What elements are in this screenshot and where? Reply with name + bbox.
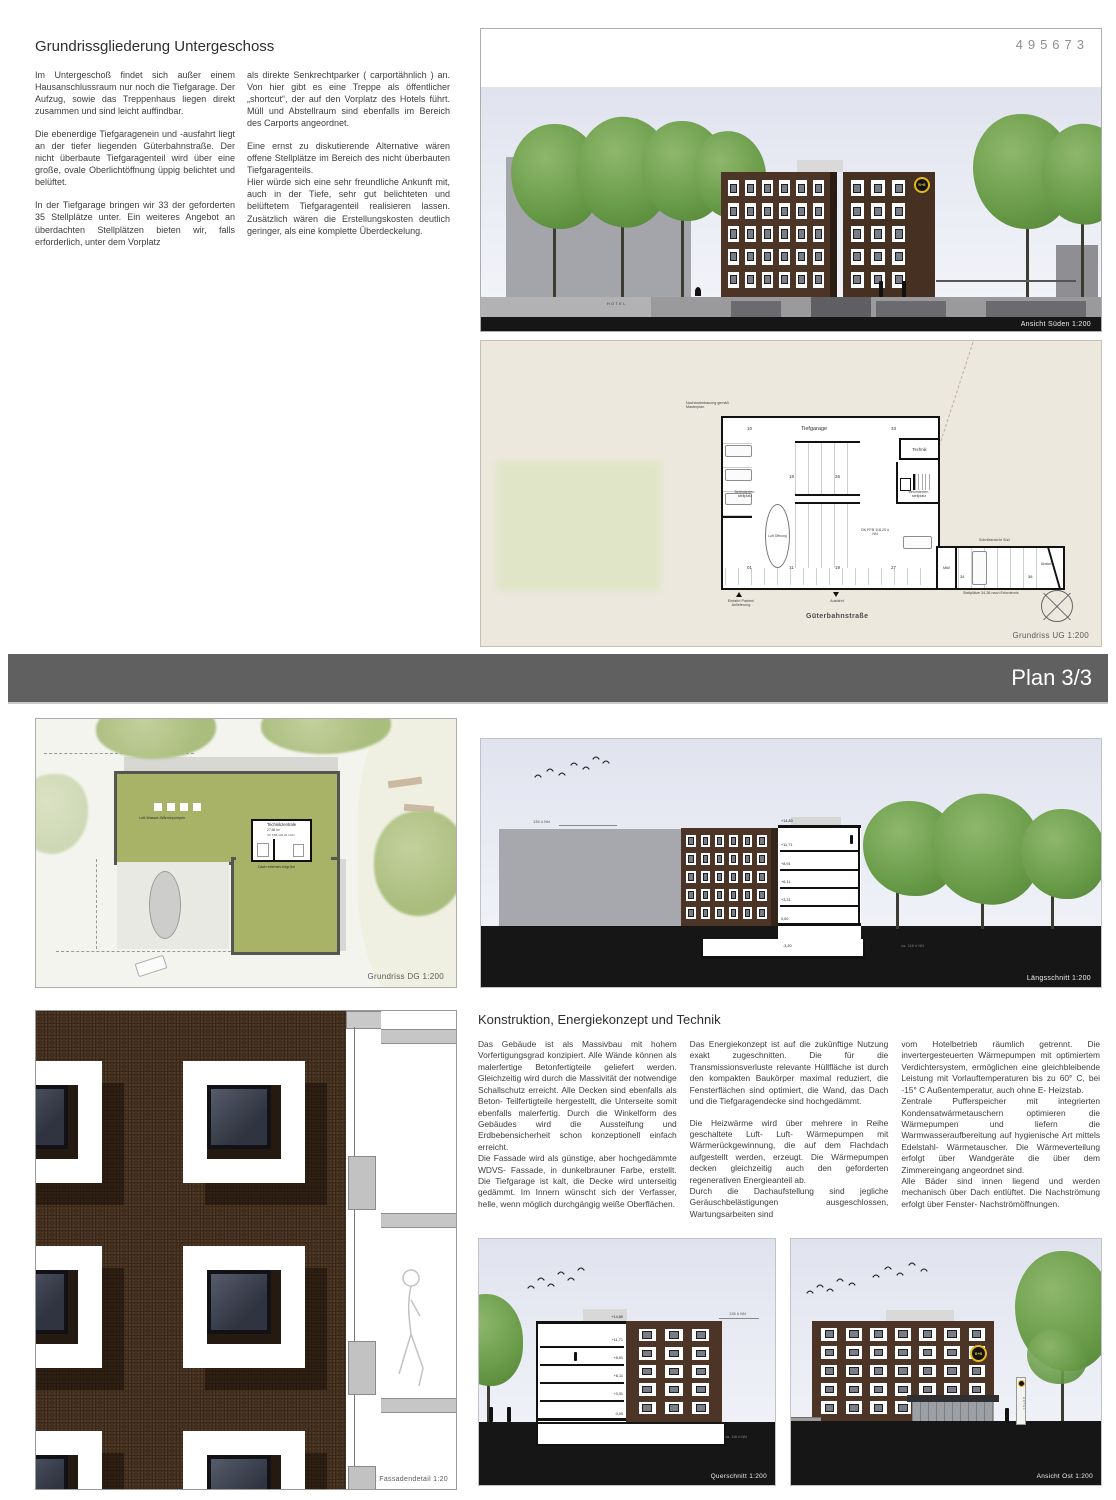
window (870, 1346, 886, 1359)
intro-column-1: Im Untergeschoß findet sich außer einem … (35, 69, 235, 248)
window (821, 1365, 837, 1378)
green-roof-lower (231, 857, 340, 955)
window-cell (940, 1362, 965, 1380)
neighbor-note: Nachbarbebauung gemäß Masterplan (686, 401, 738, 410)
drawing-label: Querschnitt 1:200 (711, 1473, 767, 1480)
window-cell (755, 886, 769, 904)
window (743, 889, 752, 902)
window-cell (866, 1362, 891, 1380)
anchor-bracket (348, 1466, 376, 1490)
technik-room: Technik (899, 438, 940, 460)
plinth-wall: HOTEL (481, 297, 1101, 317)
window (871, 203, 885, 219)
window-cell (634, 1381, 661, 1399)
window-cell (755, 850, 769, 868)
window (745, 249, 756, 265)
window-cell (842, 1343, 867, 1361)
window (870, 1365, 886, 1378)
nn-level-line (719, 1318, 759, 1319)
window-cell (759, 177, 776, 200)
exit-marker (833, 592, 839, 597)
window-cell (915, 1325, 940, 1343)
window (892, 249, 906, 265)
plan-banner: Plan 3/3 (8, 654, 1108, 704)
tree-canopy (35, 774, 88, 854)
wall (896, 462, 898, 502)
intro-text-block: Grundrissgliederung Untergeschoss Im Unt… (35, 38, 450, 248)
level-annotation: +8,91 (781, 862, 791, 866)
wall (896, 502, 938, 504)
note: Stellplätze 34-38 nach Erfordernis (963, 591, 1019, 595)
window (729, 889, 738, 902)
wall-line (354, 1027, 355, 1489)
window (639, 1347, 657, 1360)
level-annotation: -3,20 (783, 944, 792, 948)
window-cell (698, 832, 712, 850)
window (743, 907, 752, 920)
window (813, 272, 824, 288)
konstruktion-column-2: Das Energiekonzept ist auf die zukünftig… (690, 1039, 889, 1220)
floor-slab (381, 1213, 456, 1228)
railing (936, 280, 1076, 282)
tree-canopy (1027, 1329, 1087, 1384)
window-cell (817, 1399, 842, 1417)
window (821, 1383, 837, 1396)
tree-trunk (896, 889, 899, 929)
entry-label: Einfahrt Parken/ Anlieferung (723, 599, 759, 608)
window-cell (759, 245, 776, 268)
window (892, 203, 906, 219)
window-cell (634, 1399, 661, 1417)
stall-number: 34 (960, 574, 964, 579)
car-symbol (972, 551, 987, 585)
anchor-bracket (348, 1156, 376, 1210)
room-label: Tiefgarage (801, 426, 827, 433)
window (728, 203, 739, 219)
window-cell (776, 245, 793, 268)
roof-structure (797, 160, 843, 172)
window-cell (810, 245, 827, 268)
window (728, 249, 739, 265)
floor-slab (780, 905, 858, 907)
window (944, 1328, 960, 1341)
window (779, 180, 790, 196)
window (715, 889, 724, 902)
window-cell (915, 1362, 940, 1380)
window-cell (698, 886, 712, 904)
window (870, 1383, 886, 1396)
window-cell (759, 268, 776, 291)
window (665, 1365, 683, 1378)
window-cell (661, 1381, 688, 1399)
window (757, 835, 766, 848)
window (813, 180, 824, 196)
window (779, 249, 790, 265)
window (851, 203, 865, 219)
level-note: OK FFB 118,20 ü NN (859, 528, 891, 537)
bb-logo-icon (1018, 1380, 1025, 1387)
level-annotation: +6,11 (587, 1374, 623, 1378)
room-area: 27,66 m² (267, 828, 280, 832)
window (639, 1329, 657, 1342)
floor-slab (540, 1364, 624, 1366)
window-cell (842, 1380, 867, 1398)
window (944, 1365, 960, 1378)
neighbor-building (499, 829, 681, 926)
window (870, 1328, 886, 1341)
window-cell (661, 1344, 688, 1362)
window (728, 226, 739, 242)
window (969, 1328, 985, 1341)
parking-bays (795, 502, 860, 568)
window-cell (698, 850, 712, 868)
hotel-sign: HOTEL (607, 302, 627, 306)
level-annotation: +3,31 (587, 1392, 623, 1396)
window (757, 889, 766, 902)
window-cell (741, 886, 755, 904)
window-cell (712, 868, 726, 886)
window-cell (817, 1343, 842, 1361)
window-cell (888, 245, 909, 268)
window-cell (793, 223, 810, 246)
window-cell (793, 268, 810, 291)
anchor-bracket (348, 1341, 376, 1395)
window (745, 180, 756, 196)
window (639, 1365, 657, 1378)
hotel-building: B+B (812, 1321, 994, 1423)
garage-opening (986, 301, 1086, 317)
heat-pump (167, 803, 175, 811)
wall-section-strip (346, 1011, 381, 1489)
paragraph: vom Hotelbetrieb räumlich getrennt. Die … (901, 1039, 1100, 1096)
window (757, 907, 766, 920)
paragraph: Alle Bäder sind innen liegend und werden… (901, 1176, 1100, 1210)
window-cell (725, 223, 742, 246)
window (851, 226, 865, 242)
intro-title: Grundrissgliederung Untergeschoss (35, 38, 450, 55)
window-cell (684, 868, 698, 886)
window-cell (842, 1399, 867, 1417)
window (743, 835, 752, 848)
section-marker-label: Schnittansicht Süd (979, 538, 1010, 542)
window-cell (687, 1344, 714, 1362)
window-cell (698, 868, 712, 886)
window-cell (742, 245, 759, 268)
hotel-facade (626, 1321, 722, 1424)
window-cell (776, 268, 793, 291)
window-cell (868, 200, 889, 223)
window (665, 1347, 683, 1360)
window-cell (725, 200, 742, 223)
window (639, 1383, 657, 1396)
heat-pump (193, 803, 201, 811)
window-cell (725, 268, 742, 291)
exit-label: Ausfahrt (825, 599, 849, 603)
interior-section (381, 1011, 457, 1489)
window-cell (727, 868, 741, 886)
window (892, 180, 906, 196)
window (743, 871, 752, 884)
detail-window (183, 1061, 305, 1183)
street-label: Güterbahnstraße (806, 613, 868, 620)
window-cell (698, 904, 712, 922)
window-cell (741, 904, 755, 922)
window (745, 272, 756, 288)
paragraph: Eine ernst zu diskutierende Alternative … (247, 140, 450, 176)
garage-opening (876, 301, 946, 317)
boundary-dashed (56, 951, 246, 952)
window-cell (847, 245, 868, 268)
car-symbol (903, 536, 932, 549)
window-cell (755, 832, 769, 850)
wall (1047, 546, 1062, 590)
window-cell (817, 1325, 842, 1343)
green-area (496, 461, 661, 591)
equipment (257, 843, 269, 857)
site-boundary (917, 342, 1102, 560)
intro-column-2: als direkte Senkrechtparker ( carportähn… (247, 69, 450, 248)
window-cell (712, 904, 726, 922)
window-cell (868, 177, 889, 200)
window-cell (755, 868, 769, 886)
level-annotation: 0,00 (587, 1412, 623, 1416)
floor-slab (381, 1029, 456, 1044)
window-cell (915, 1343, 940, 1361)
window (639, 1402, 657, 1415)
window (728, 180, 739, 196)
window (895, 1365, 911, 1378)
side-structure (1056, 245, 1098, 297)
window (944, 1383, 960, 1396)
window (895, 1328, 911, 1341)
drawing-label: Längsschnitt 1:200 (1027, 975, 1091, 982)
entrance-opening (811, 297, 871, 317)
window-cell (810, 200, 827, 223)
window-cell (725, 177, 742, 200)
person-silhouette (850, 835, 853, 844)
window (762, 272, 773, 288)
window-cell (741, 850, 755, 868)
window-cell (842, 1325, 867, 1343)
window-cell (940, 1343, 965, 1361)
window (871, 249, 885, 265)
window (701, 853, 710, 866)
window-cell (742, 223, 759, 246)
window (895, 1346, 911, 1359)
muell-room: Müll (938, 548, 957, 588)
window-cell (776, 223, 793, 246)
window (692, 1365, 710, 1378)
basement-section (701, 939, 865, 959)
window-cell (866, 1399, 891, 1417)
sheet-number: 495673 (1016, 37, 1089, 52)
stall-number: 38 (1028, 574, 1032, 579)
heat-pump (180, 803, 188, 811)
window-cell (810, 223, 827, 246)
window (796, 180, 807, 196)
window (919, 1328, 935, 1341)
room-level: OK FFB 136,20 ü NN (267, 833, 297, 837)
window (686, 889, 695, 902)
window (762, 203, 773, 219)
window (944, 1346, 960, 1359)
window-cell (684, 850, 698, 868)
entrance-canopy (907, 1395, 999, 1402)
window-cell (725, 245, 742, 268)
drawing-label: Grundriss UG 1:200 (1012, 631, 1089, 640)
window (796, 203, 807, 219)
window-cell (712, 886, 726, 904)
konstruktion-column-3: vom Hotelbetrieb räumlich getrennt. Die … (901, 1039, 1100, 1220)
level-annotation: +11,71 (587, 1338, 623, 1342)
window (851, 272, 865, 288)
window-cell (866, 1380, 891, 1398)
paragraph: Das Energiekonzept ist auf die zukünftig… (690, 1039, 889, 1108)
hotel-building-right-wing: B+B (843, 172, 935, 299)
window (779, 272, 790, 288)
window (846, 1383, 862, 1396)
window (715, 871, 724, 884)
window-cell (759, 223, 776, 246)
birds-icon (524, 1264, 594, 1298)
entrance-glazing (912, 1402, 994, 1423)
ground-band (481, 317, 1101, 331)
window-cell (684, 886, 698, 904)
window-cell (810, 177, 827, 200)
window (871, 226, 885, 242)
window (715, 835, 724, 848)
window (796, 272, 807, 288)
window-cell (866, 1343, 891, 1361)
window-cell (868, 245, 889, 268)
window (665, 1329, 683, 1342)
person-silhouette (507, 1407, 511, 1422)
boundary-dashed (96, 859, 97, 949)
window-cell (712, 850, 726, 868)
window (692, 1329, 710, 1342)
parking-bays (958, 548, 1043, 588)
window-cell (684, 904, 698, 922)
window-cell (793, 177, 810, 200)
window-cell (847, 177, 868, 200)
nn-level-label: 135 ü NN (729, 1311, 746, 1316)
window-cell (741, 868, 755, 886)
equipment (293, 844, 304, 857)
window (692, 1347, 710, 1360)
car-symbol (135, 955, 168, 978)
window (762, 249, 773, 265)
window (729, 871, 738, 884)
hotel-pylon-sign: HOTEL (1016, 1377, 1026, 1425)
window (796, 226, 807, 242)
window-cell (847, 268, 868, 291)
window (692, 1383, 710, 1396)
building-edge-shadow (771, 828, 778, 928)
window-cell (687, 1381, 714, 1399)
window (846, 1328, 862, 1341)
window-cell (868, 268, 889, 291)
window-cell (755, 904, 769, 922)
nn-level-label: ca. 116 ü NN (901, 943, 924, 948)
hotel-facade (681, 828, 778, 928)
level-annotation: +6,11 (781, 880, 790, 884)
panel-ansicht-sueden: 495673 B+B (480, 28, 1102, 332)
window-cell (842, 1362, 867, 1380)
window-cell (634, 1362, 661, 1380)
person-silhouette (489, 1407, 493, 1422)
drawing-label: Ansicht Süden 1:200 (1021, 321, 1091, 328)
floor-slab (780, 887, 858, 889)
nn-level-label: 135 ü NN (533, 819, 550, 824)
car-symbol (725, 469, 752, 481)
paragraph: Die ebenerdige Tiefgaragenein und -ausfa… (35, 128, 235, 188)
person-outline (389, 1266, 437, 1391)
drawing-label: Fassadendetail 1:20 (379, 1476, 448, 1483)
window-cell (742, 268, 759, 291)
window (779, 226, 790, 242)
window (871, 180, 885, 196)
window-cell (793, 245, 810, 268)
window-cell (810, 268, 827, 291)
pylon-text: HOTEL (1017, 1387, 1025, 1421)
level-annotation: +14,80 (587, 1315, 623, 1319)
level-annotation: +14,80 (781, 819, 793, 823)
window (701, 889, 710, 902)
floor-slab (780, 869, 858, 871)
window (701, 871, 710, 884)
window-cell (793, 200, 810, 223)
ground-slab (538, 1418, 628, 1421)
window (813, 203, 824, 219)
birds-icon (805, 1271, 867, 1301)
window-cell (891, 1343, 916, 1361)
wall (273, 839, 275, 860)
window (745, 203, 756, 219)
window (813, 249, 824, 265)
window-cell (759, 200, 776, 223)
paragraph: In der Tiefgarage bringen wir 33 der gef… (35, 199, 235, 247)
window-cell (634, 1344, 661, 1362)
window (729, 907, 738, 920)
window-cell (742, 200, 759, 223)
window-cell (742, 177, 759, 200)
room-label: Technikzentrale (267, 822, 296, 827)
window (729, 835, 738, 848)
window (821, 1346, 837, 1359)
stall-number: 18 (789, 474, 794, 480)
stall-label: Behinderten- stellplatz (905, 490, 933, 499)
parking-bays (725, 568, 933, 585)
window (846, 1365, 862, 1378)
window (686, 907, 695, 920)
parking-bays (795, 441, 860, 496)
window-cell (817, 1362, 842, 1380)
window (821, 1401, 837, 1414)
window (851, 180, 865, 196)
window-cell (741, 832, 755, 850)
level-annotation: +8,91 (587, 1356, 623, 1360)
paragraph: Hier würde sich eine sehr freundliche An… (247, 176, 450, 236)
window-cell (661, 1399, 688, 1417)
window (779, 203, 790, 219)
window-cell (964, 1325, 989, 1343)
cyclist-silhouette (695, 287, 701, 296)
window (665, 1383, 683, 1396)
window-cell (891, 1362, 916, 1380)
window (743, 853, 752, 866)
window (796, 249, 807, 265)
window (692, 1402, 710, 1415)
